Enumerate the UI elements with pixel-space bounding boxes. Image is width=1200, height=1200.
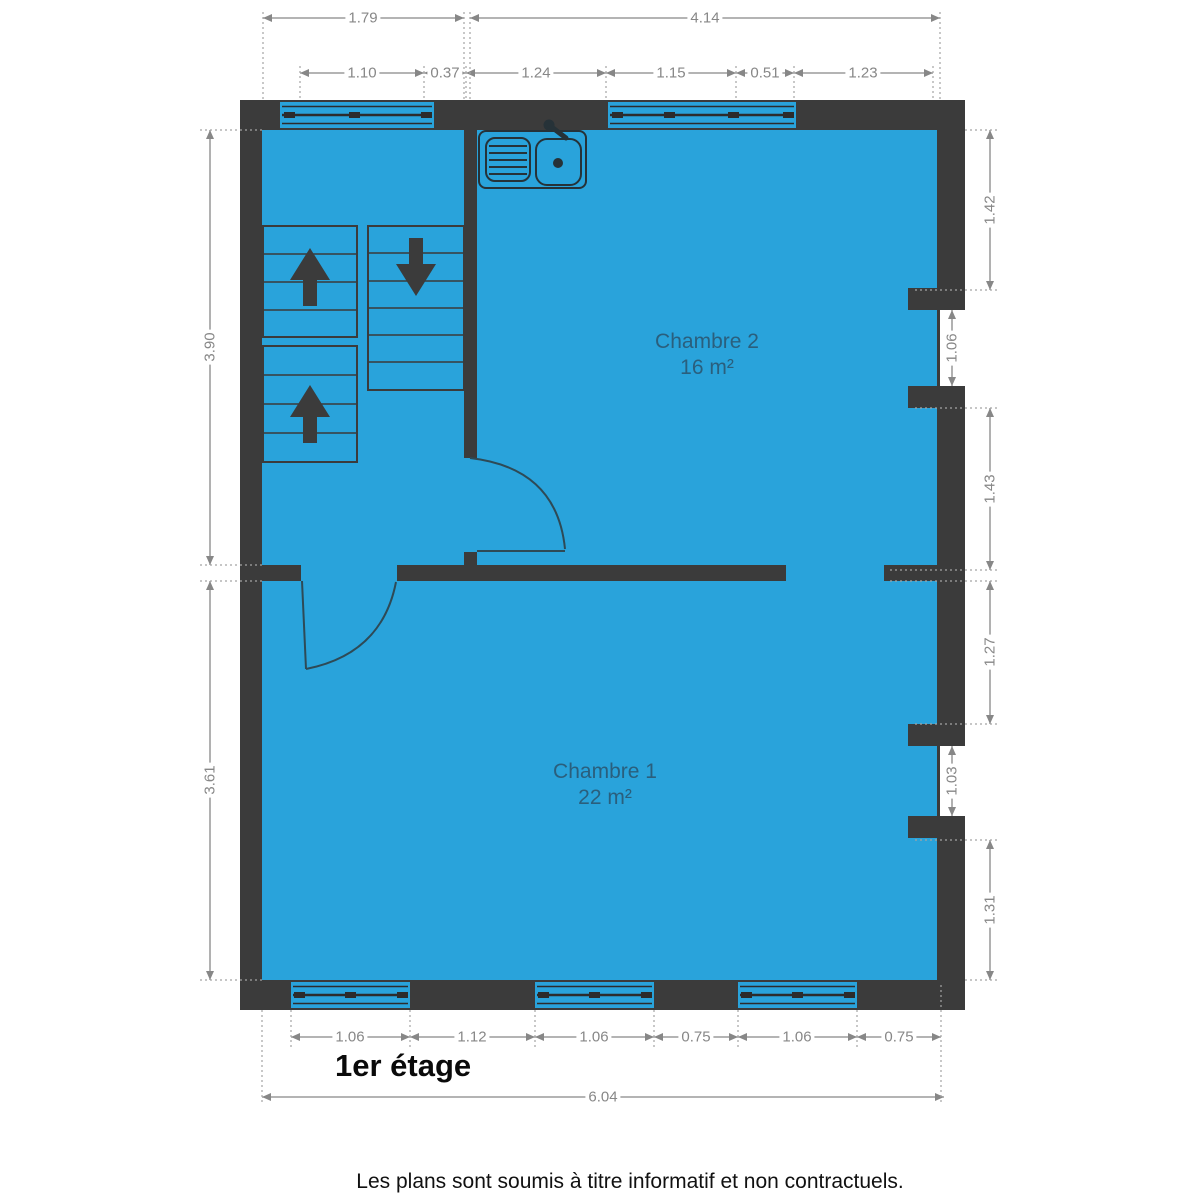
room-name: Chambre 1 [553,759,657,785]
bottom-window-1 [291,982,410,1008]
room-label-chambre-2: Chambre 2 16 m² [655,329,759,381]
room-area: 22 m² [553,785,657,811]
dim-label: 0.37 [427,65,462,82]
dim-label: 1.24 [518,65,553,82]
dim-label: 3.61 [202,762,219,797]
dim-label: 1.43 [982,471,999,506]
dim-label: 1.79 [345,10,380,27]
floor-plan-drawing [0,0,1200,1200]
dim-label-window: 1.06 [944,330,961,365]
dim-label: 1.10 [344,65,379,82]
dim-label: 1.12 [454,1029,489,1046]
dim-label: 1.06 [332,1029,367,1046]
top-window-1 [280,102,434,128]
dim-label: 1.15 [653,65,688,82]
dim-label: 1.23 [845,65,880,82]
dim-label: 4.14 [687,10,722,27]
dim-label: 1.27 [982,634,999,669]
disclaimer-text: Les plans sont soumis à titre informatif… [356,1170,903,1194]
dim-label: 0.51 [747,65,782,82]
dim-label-window: 1.03 [944,763,961,798]
room-label-chambre-1: Chambre 1 22 m² [553,759,657,811]
floor-area [262,130,937,980]
bottom-window-2 [535,982,654,1008]
dim-label: 1.42 [982,192,999,227]
room-area: 16 m² [655,355,759,381]
dim-label: 0.75 [881,1029,916,1046]
dim-label: 1.06 [576,1029,611,1046]
dim-label: 3.90 [202,329,219,364]
dim-label: 1.06 [779,1029,814,1046]
room-name: Chambre 2 [655,329,759,355]
floor-title: 1er étage [335,1048,471,1084]
floor-plan-page: 1.79 4.14 1.10 0.37 1.24 1.15 0.51 1.23 … [0,0,1200,1200]
dim-label: 1.31 [982,892,999,927]
dim-label: 0.75 [678,1029,713,1046]
bottom-window-3 [738,982,857,1008]
top-window-2 [608,102,796,128]
dim-label: 6.04 [585,1089,620,1106]
